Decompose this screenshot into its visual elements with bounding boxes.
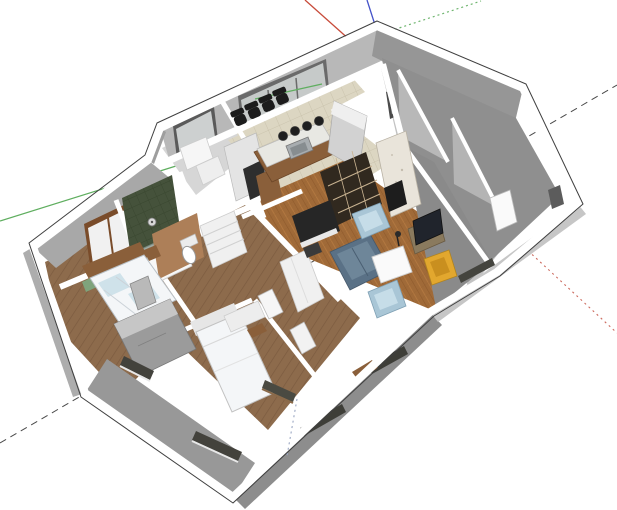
marble-speckle-2 xyxy=(401,169,403,171)
model-viewport[interactable] xyxy=(0,0,617,510)
floorplan-3d-canvas[interactable] xyxy=(0,0,617,510)
bathroom-light-center xyxy=(151,221,153,223)
bar-stool xyxy=(315,117,324,126)
floor-lamp-shade xyxy=(395,231,401,237)
marble-speckle-1 xyxy=(391,154,393,156)
bar-stool xyxy=(279,132,288,141)
red-axis-dotted xyxy=(524,247,617,333)
bar-stool xyxy=(303,122,312,131)
green-axis-dotted xyxy=(390,1,481,31)
bar-stool xyxy=(291,127,300,136)
red-axis-solid xyxy=(305,0,351,41)
